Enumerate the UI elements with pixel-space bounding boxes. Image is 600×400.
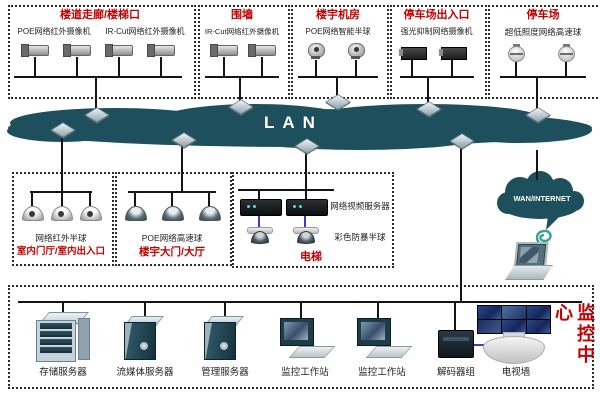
device-label: IR-Cut网络红外摄像机 (196, 27, 288, 37)
smart-dome-camera-icon (346, 42, 366, 59)
group-building-gate-title: 楼宇大门/大厅 (118, 246, 226, 258)
video-server-icon (240, 199, 282, 216)
speed-dome-camera-icon (162, 206, 182, 219)
speed-dome-camera-icon (557, 44, 575, 62)
bullet-camera-icon (104, 42, 134, 58)
device-label: 网络红外半球 (16, 233, 106, 243)
device-label: 管理服务器 (194, 364, 256, 378)
device-label: 强光抑制网络摄像机 (390, 27, 483, 37)
ir-dome-camera-icon (80, 206, 100, 219)
speed-dome-camera-icon (125, 206, 145, 219)
workstation-icon (353, 318, 409, 360)
ir-dome-camera-icon (22, 206, 42, 219)
device-label: IR-Cut网络红外摄像机 (98, 27, 192, 37)
workstation-icon (276, 318, 332, 360)
bullet-camera-icon (20, 42, 50, 58)
device-label: 监控工作站 (351, 364, 413, 378)
group-elevator-title: 电梯 (271, 251, 351, 263)
bullet-camera-icon (146, 42, 176, 58)
speed-dome-camera-icon (507, 44, 525, 62)
network-topology-diagram: LAN 楼道走廊/楼梯口 POE网络红外摄像机 IR-Cut网络红外摄像机 围墙… (0, 0, 600, 400)
device-label: 存储服务器 (28, 364, 98, 378)
box-camera-icon (439, 45, 467, 60)
box-camera-icon (399, 45, 427, 60)
media-server-icon (122, 316, 166, 360)
vandal-dome-camera-icon (293, 227, 317, 243)
storage-server-icon (36, 312, 90, 360)
management-server-icon (202, 316, 246, 360)
device-label: 彩色防暴半球 (332, 232, 388, 242)
device-label: 电视墙 (496, 364, 536, 378)
tv-wall-icon (477, 305, 549, 363)
group-parking-title: 停车场 (488, 9, 598, 21)
wan-label: WAN/INTERNET (500, 194, 584, 203)
group-corridor-title: 楼道走廊/楼梯口 (8, 9, 192, 21)
device-label: POE网络高速球 (120, 233, 224, 243)
device-label: POE网络智能半球 (291, 27, 385, 37)
bullet-camera-icon (247, 42, 277, 58)
group-parking-entrance-title: 停车场出入口 (390, 9, 483, 21)
decoder-icon (438, 330, 474, 358)
vandal-dome-camera-icon (247, 227, 271, 243)
group-wall-title: 围墙 (198, 9, 286, 21)
video-server-icon (286, 199, 328, 216)
device-label: 监控工作站 (274, 364, 336, 378)
group-indoor-hall-title: 室内门厅/室内出入口 (13, 246, 109, 258)
laptop-icon (505, 242, 565, 282)
smart-dome-camera-icon (306, 42, 326, 59)
speed-dome-camera-icon (199, 206, 219, 219)
device-label: 超低照度网络高速球 (488, 27, 598, 37)
bullet-camera-icon (209, 42, 239, 58)
device-label: 网络视频服务器 (330, 201, 390, 211)
bullet-camera-icon (62, 42, 92, 58)
group-machine-room-title: 楼宇机房 (291, 9, 385, 21)
ir-dome-camera-icon (51, 206, 71, 219)
device-label: POE网络红外摄像机 (8, 27, 100, 37)
device-label: 流媒体服务器 (110, 364, 180, 378)
monitor-center-title: 监控中心 (552, 303, 596, 385)
device-label: 解码器组 (431, 364, 481, 378)
lan-label: LAN (264, 113, 323, 133)
